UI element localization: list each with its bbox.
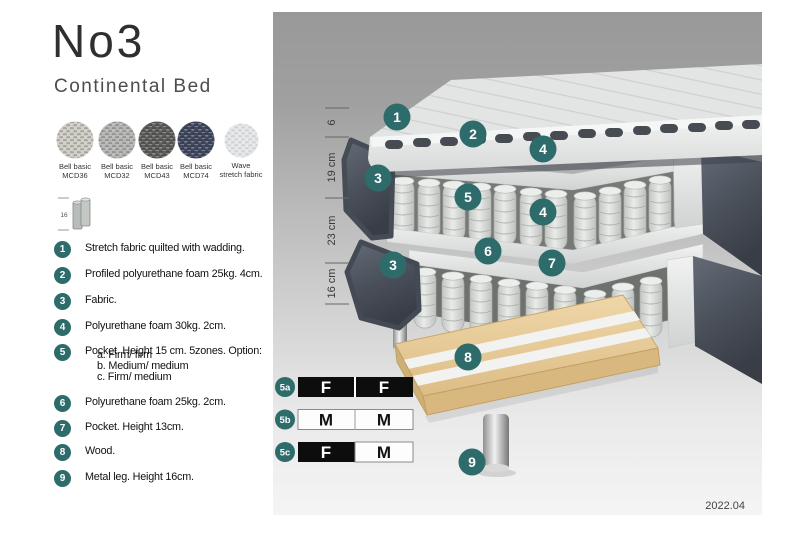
fabric-swatch-icon (56, 121, 94, 159)
legend-num-3: 3 (54, 293, 71, 310)
svg-text:5a: 5a (280, 383, 291, 394)
svg-text:3: 3 (389, 257, 397, 273)
marker-2: 2 (460, 121, 487, 148)
svg-text:9: 9 (468, 454, 476, 470)
dim-upper-box: 19 cm (326, 153, 338, 183)
svg-text:6: 6 (484, 243, 492, 259)
marker-4b: 4 (530, 199, 557, 226)
svg-text:F: F (321, 378, 331, 397)
svg-text:3: 3 (374, 170, 382, 186)
legend-num-9: 9 (54, 470, 71, 487)
legend-5-options: a. Firm/ firm b. Medium/ medium c. Firm/… (97, 350, 188, 384)
legend-num-2: 2 (54, 267, 71, 284)
legend-num-7: 7 (54, 420, 71, 437)
swatch-label: Bell basic (59, 162, 91, 171)
firmness-id-5b: 5b (275, 410, 295, 430)
dim-mattress: 6 (326, 119, 338, 125)
dim-lower-box: 23 cm (326, 216, 338, 246)
marker-9: 9 (459, 449, 486, 476)
legend-text-4: Polyurethane foam 30kg. 2cm. (85, 320, 226, 332)
swatch-label: Bell basic (141, 162, 173, 171)
swatch-label: Bell basic (101, 162, 133, 171)
marker-5: 5 (455, 184, 482, 211)
swatch-label: Bell basic (180, 162, 212, 171)
marker-4a: 4 (530, 136, 557, 163)
marker-7: 7 (539, 250, 566, 277)
marker-3a: 3 (365, 165, 392, 192)
legend-text-8: Wood. (85, 445, 115, 457)
svg-text:5b: 5b (279, 415, 290, 426)
legend-num-6: 6 (54, 395, 71, 412)
svg-text:M: M (319, 411, 333, 430)
firmness-id-5a: 5a (275, 377, 295, 397)
fabric-swatch-icon (224, 123, 259, 158)
svg-text:2: 2 (469, 126, 477, 142)
marker-6: 6 (475, 238, 502, 265)
svg-text:4: 4 (539, 141, 547, 157)
bed-cutaway-panel: 1 2 4 3 5 4 6 7 3 8 9 6 19 cm 23 cm 16 c… (273, 12, 762, 515)
leg-cylinder (81, 199, 90, 226)
marker-8: 8 (455, 344, 482, 371)
svg-text:F: F (321, 443, 331, 462)
fabric-swatch: Wavestretch fabric (215, 123, 267, 180)
svg-text:8: 8 (464, 349, 472, 365)
bed-cutaway-illustration: 1 2 4 3 5 4 6 7 3 8 9 6 19 cm 23 cm 16 c… (273, 12, 762, 515)
dim-legs: 16 cm (326, 269, 338, 299)
svg-text:M: M (377, 411, 391, 430)
svg-text:5: 5 (464, 189, 472, 205)
swatch-label: Wave (232, 161, 251, 170)
page-title: No3 (52, 18, 145, 64)
leg-height-label: 16 (60, 212, 68, 219)
svg-text:1: 1 (393, 109, 401, 125)
page-subtitle: Continental Bed (54, 76, 212, 98)
legend-num-1: 1 (54, 241, 71, 258)
svg-text:4: 4 (539, 204, 547, 220)
legend-text-6: Polyurethane foam 25kg. 2cm. (85, 396, 226, 408)
fabric-swatch-icon (177, 121, 215, 159)
marker-1: 1 (384, 104, 411, 131)
svg-text:7: 7 (548, 255, 556, 271)
marker-3b: 3 (380, 252, 407, 279)
svg-text:M: M (377, 443, 391, 462)
svg-text:F: F (379, 378, 389, 397)
leg-height-pictogram: 16 (56, 195, 100, 240)
legend-num-5: 5 (54, 344, 71, 361)
firmness-id-5c: 5c (275, 442, 295, 462)
legend-text-9: Metal leg. Height 16cm. (85, 471, 194, 483)
legend-text-3: Fabric. (85, 294, 117, 306)
legend-num-8: 8 (54, 444, 71, 461)
parts-legend: 1 Stretch fabric quilted with wadding. 2… (52, 237, 270, 497)
svg-text:5c: 5c (280, 448, 291, 459)
legend-num-4: 4 (54, 319, 71, 336)
legend-text-2: Profiled polyurethane foam 25kg. 4cm. (85, 268, 262, 280)
legend-text-7: Pocket. Height 13cm. (85, 421, 184, 433)
version-label: 2022.04 (705, 500, 745, 512)
legend-text-1: Stretch fabric quilted with wadding. (85, 242, 245, 254)
